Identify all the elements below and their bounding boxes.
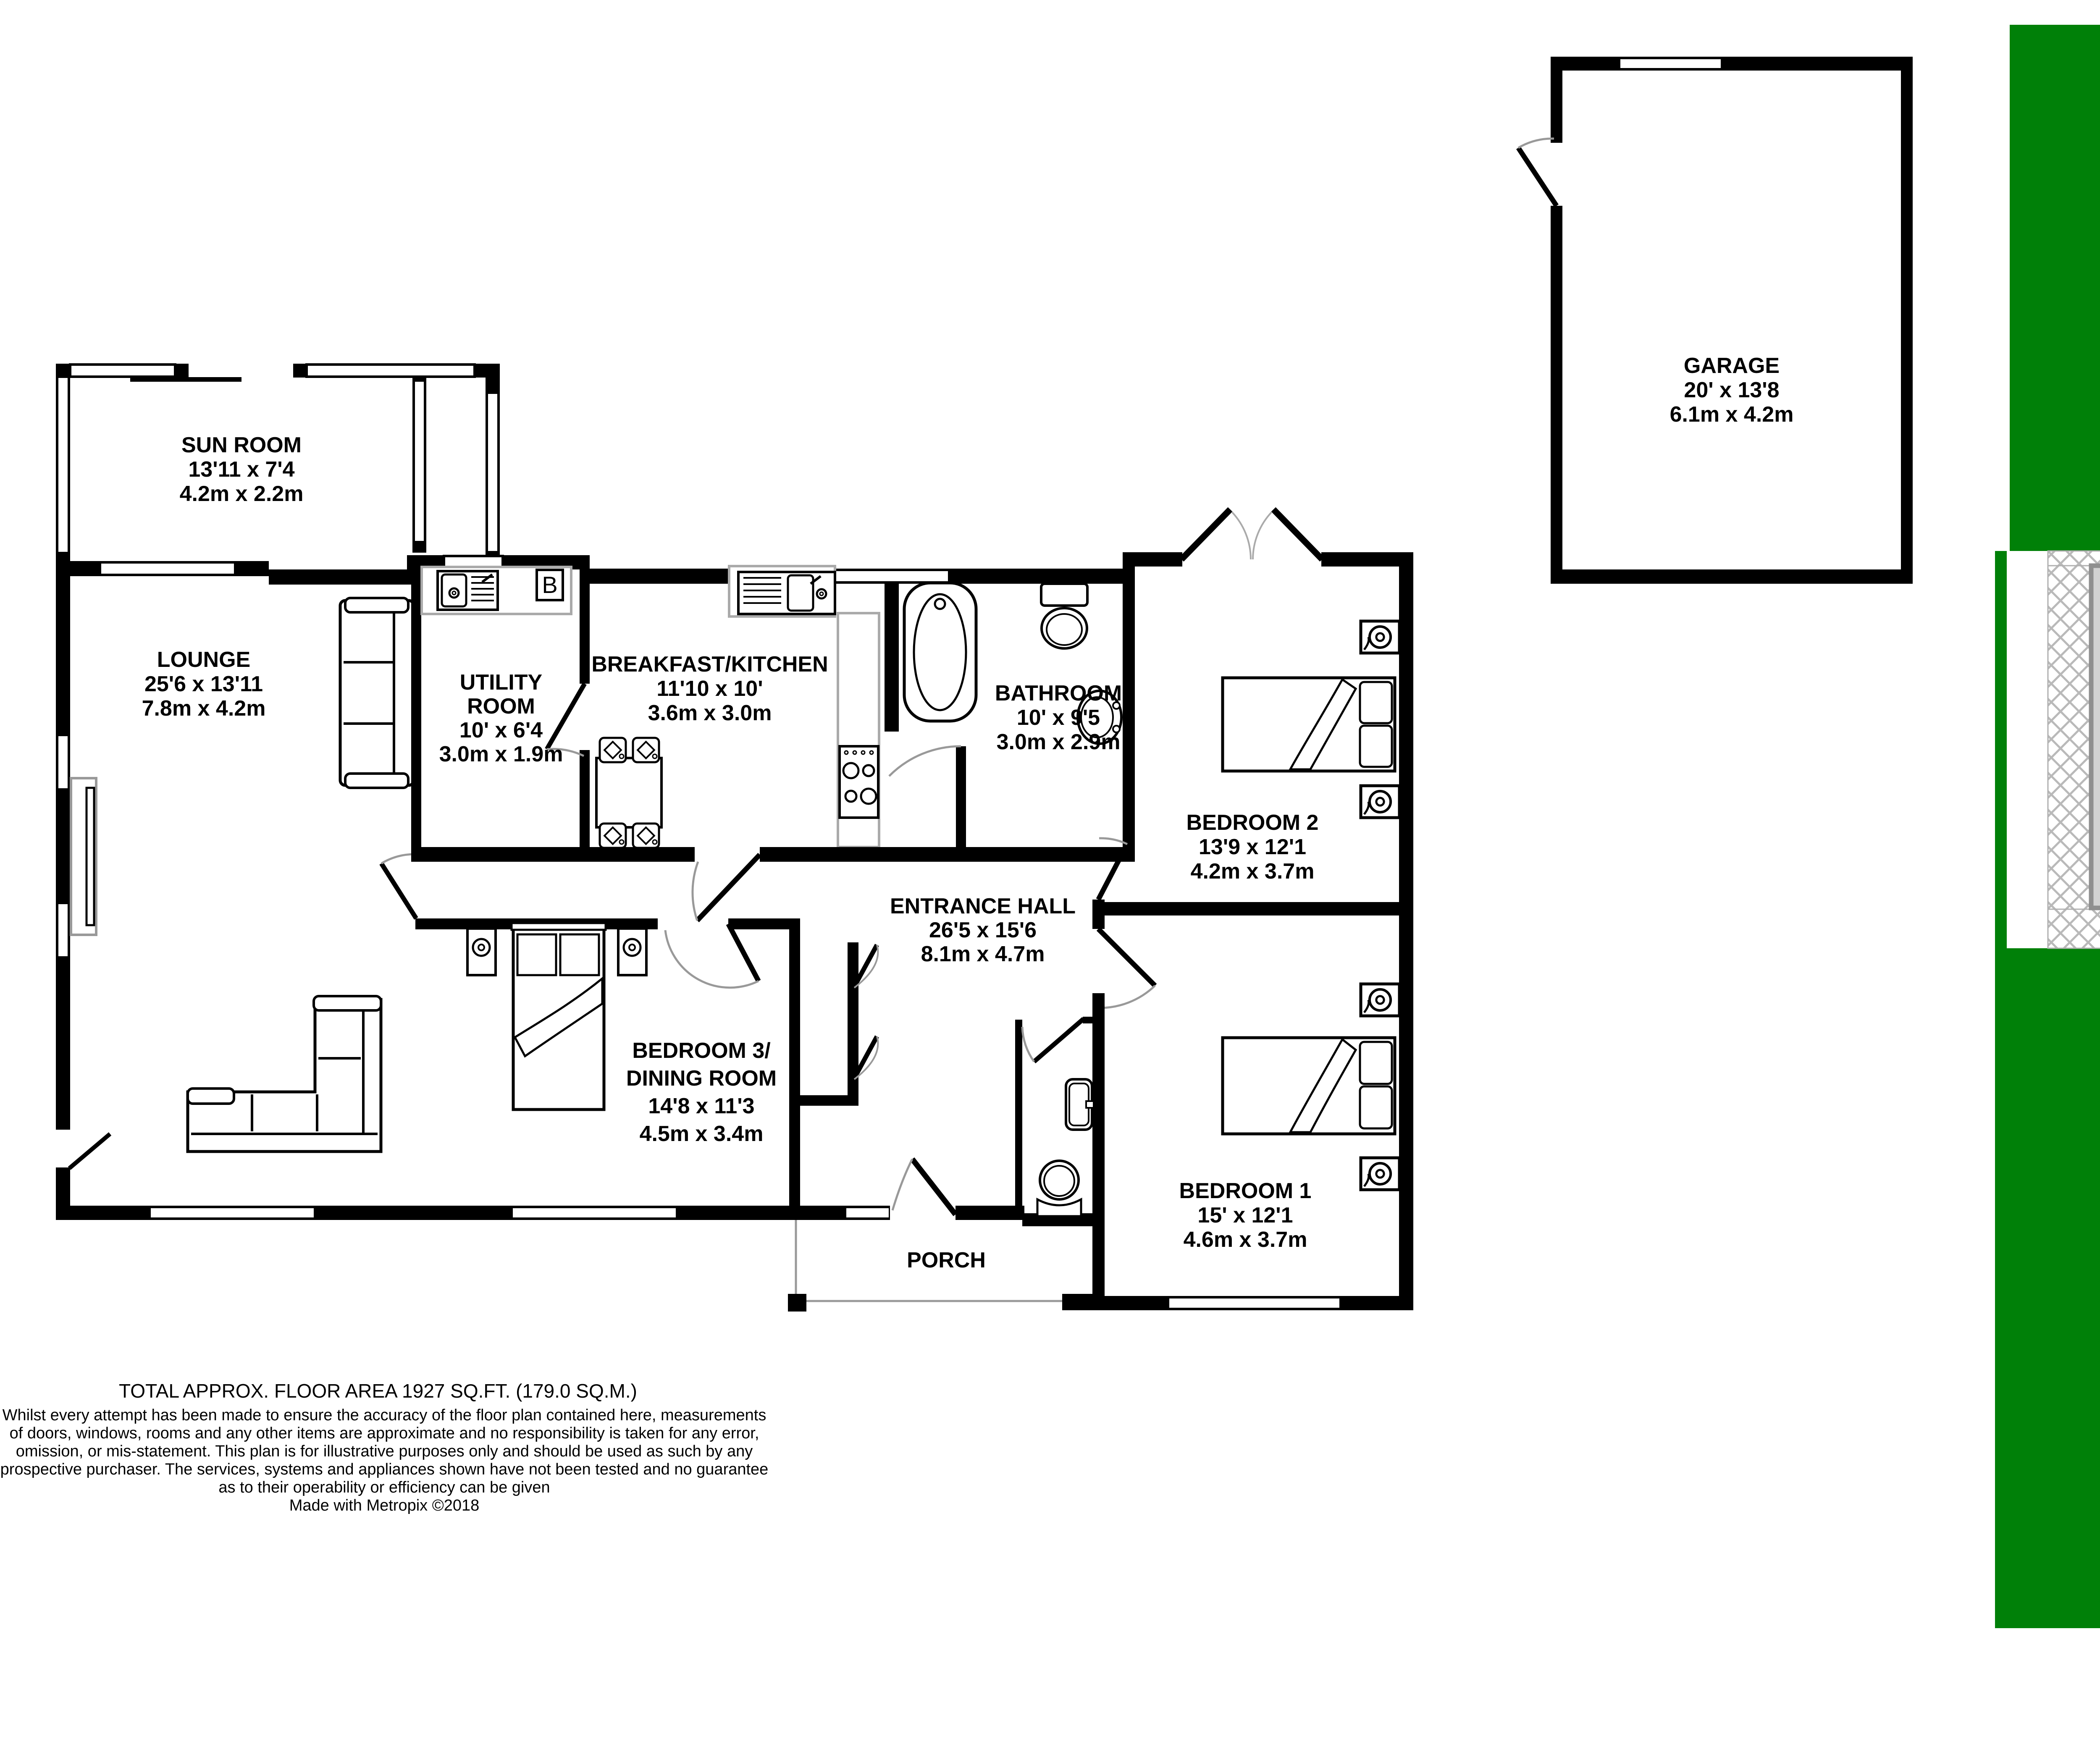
svg-text:15' x 12'1: 15' x 12'1 xyxy=(1197,1203,1293,1228)
svg-text:BEDROOM 1: BEDROOM 1 xyxy=(1179,1179,1312,1203)
svg-text:GARAGE: GARAGE xyxy=(1684,354,1780,378)
svg-text:SUN ROOM: SUN ROOM xyxy=(181,433,302,457)
svg-text:11'10 x 10': 11'10 x 10' xyxy=(656,677,763,701)
svg-text:4.2m x 3.7m: 4.2m x 3.7m xyxy=(1191,859,1315,884)
svg-text:3.0m x 1.9m: 3.0m x 1.9m xyxy=(439,742,563,766)
svg-text:14'8 x 11'3: 14'8 x 11'3 xyxy=(648,1094,754,1118)
svg-text:4.6m x 3.7m: 4.6m x 3.7m xyxy=(1184,1228,1307,1252)
svg-text:UTILITY: UTILITY xyxy=(460,670,542,695)
svg-text:13'9 x 12'1: 13'9 x 12'1 xyxy=(1199,835,1306,859)
svg-text:4.2m x 2.2m: 4.2m x 2.2m xyxy=(180,482,304,506)
svg-text:ROOM: ROOM xyxy=(467,694,535,719)
svg-text:4.5m x 3.4m: 4.5m x 3.4m xyxy=(640,1122,764,1146)
svg-text:BATHROOM: BATHROOM xyxy=(995,681,1122,706)
svg-text:20' x 13'8: 20' x 13'8 xyxy=(1684,378,1779,402)
svg-text:omission, or mis-statement. Th: omission, or mis-statement. This plan is… xyxy=(16,1443,753,1460)
svg-text:26'5 x 15'6: 26'5 x 15'6 xyxy=(929,918,1037,942)
svg-text:of doors, windows, rooms and a: of doors, windows, rooms and any other i… xyxy=(10,1424,759,1442)
svg-text:8.1m x 4.7m: 8.1m x 4.7m xyxy=(921,942,1045,966)
svg-text:BEDROOM 2: BEDROOM 2 xyxy=(1186,811,1319,835)
svg-text:Whilst every attempt has been: Whilst every attempt has been made to en… xyxy=(3,1406,766,1424)
svg-text:3.0m x 2.9m: 3.0m x 2.9m xyxy=(997,730,1121,754)
svg-text:BREAKFAST/KITCHEN: BREAKFAST/KITCHEN xyxy=(591,652,828,677)
svg-text:prospective purchaser. The ser: prospective purchaser. The services, sys… xyxy=(0,1461,769,1478)
svg-text:DINING ROOM: DINING ROOM xyxy=(626,1066,777,1091)
svg-text:as to their operability or eff: as to their operability or efficiency ca… xyxy=(218,1479,550,1496)
svg-text:B: B xyxy=(542,572,557,598)
svg-text:25'6 x 13'11: 25'6 x 13'11 xyxy=(144,672,263,696)
svg-text:Made with Metropix ©2018: Made with Metropix ©2018 xyxy=(289,1497,480,1514)
svg-text:13'11 x 7'4: 13'11 x 7'4 xyxy=(188,457,294,482)
svg-text:6.1m x 4.2m: 6.1m x 4.2m xyxy=(1670,402,1794,427)
svg-text:PORCH: PORCH xyxy=(907,1248,986,1272)
svg-text:7.8m x 4.2m: 7.8m x 4.2m xyxy=(142,696,266,721)
svg-text:TOTAL APPROX. FLOOR AREA 1927: TOTAL APPROX. FLOOR AREA 1927 SQ.FT. (17… xyxy=(119,1380,637,1402)
svg-text:LOUNGE: LOUNGE xyxy=(157,648,250,672)
svg-text:10' x 9'5: 10' x 9'5 xyxy=(1017,706,1100,730)
svg-text:3.6m x 3.0m: 3.6m x 3.0m xyxy=(648,701,772,725)
svg-text:ENTRANCE HALL: ENTRANCE HALL xyxy=(890,894,1076,918)
svg-text:BEDROOM 3/: BEDROOM 3/ xyxy=(632,1039,770,1063)
svg-text:10' x 6'4: 10' x 6'4 xyxy=(459,718,543,742)
